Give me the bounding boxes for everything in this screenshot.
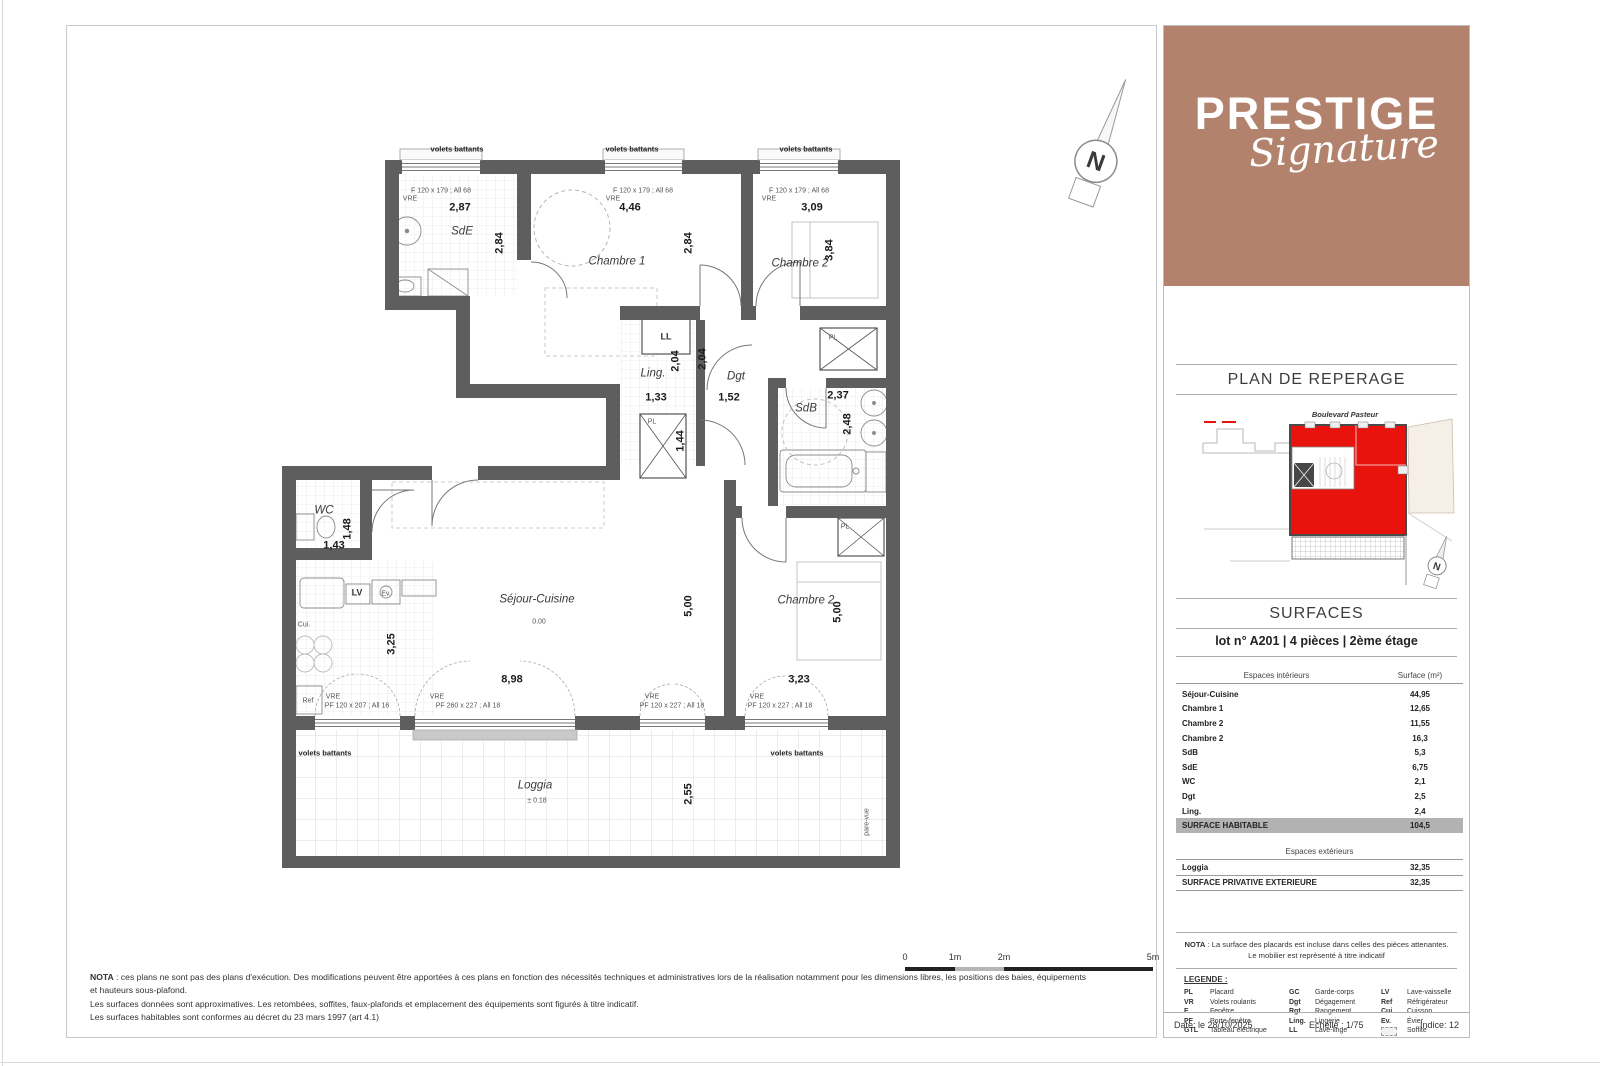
location-map: Boulevard Pasteur xyxy=(1175,399,1458,594)
exterior-total-label: SURFACE PRIVATIVE EXTERIEURE xyxy=(1176,878,1377,887)
neighbor-lines xyxy=(1204,529,1290,561)
table-row: Chambre 216,3 xyxy=(1176,731,1463,746)
ll-box xyxy=(642,318,690,354)
bed-chambre2-top xyxy=(792,222,878,298)
footer-index: Indice: 12 xyxy=(1420,1020,1459,1030)
turning-circle xyxy=(534,190,610,266)
legend-label: Lave-vaisselle xyxy=(1407,989,1459,996)
row-value: 44,95 xyxy=(1377,690,1463,699)
nota-bold: NOTA xyxy=(90,972,114,982)
legend-label: Dégagement xyxy=(1315,999,1381,1006)
room-sdb-floor xyxy=(778,388,886,506)
legend-entry: GCGarde-corps xyxy=(1289,989,1381,996)
legend-abbr: PL xyxy=(1184,989,1210,996)
sliding-door-sill xyxy=(413,730,577,740)
row-label: WC xyxy=(1176,777,1377,786)
legend-abbr: Ref xyxy=(1381,999,1407,1006)
exterior-rows: Loggia32,35 xyxy=(1176,859,1463,875)
adjacent-parcel xyxy=(1408,419,1454,513)
row-value: 2,1 xyxy=(1377,777,1463,786)
row-value: 5,3 xyxy=(1377,748,1463,757)
page: volets battantsvolets battantsvolets bat… xyxy=(0,0,1600,1066)
street-label: Boulevard Pasteur xyxy=(1312,410,1379,419)
page-edge-line-bottom xyxy=(0,1062,1600,1063)
soffite-outline xyxy=(392,482,604,528)
right-panel: PRESTIGE Signature PLAN DE REPERAGE Boul… xyxy=(1163,25,1470,1038)
legend-label: Volets roulants xyxy=(1210,999,1289,1006)
row-label: Chambre 2 xyxy=(1176,719,1377,728)
loggia-floor xyxy=(296,730,886,856)
row-label: Chambre 1 xyxy=(1176,704,1377,713)
habitable-row: SURFACE HABITABLE 104,5 xyxy=(1176,818,1463,833)
footer-scale: Echelle : 1/75 xyxy=(1309,1020,1364,1030)
col-header-surface: Surface (m²) xyxy=(1377,671,1463,680)
main-nota: NOTA : ces plans ne sont pas des plans d… xyxy=(90,971,1150,1024)
table-row: Séjour-Cuisine44,95 xyxy=(1176,687,1463,702)
surfaces-table: Espaces intérieurs Surface (m²) Séjour-C… xyxy=(1176,671,1463,891)
habitable-label: SURFACE HABITABLE xyxy=(1176,821,1377,830)
nota-line: NOTA : ces plans ne sont pas des plans d… xyxy=(90,971,1150,984)
footer-date: Date: le 28/10/2025 xyxy=(1174,1020,1253,1030)
room-sde-floor xyxy=(399,174,517,296)
legend-abbr: Dgt xyxy=(1289,999,1315,1006)
col-header-spaces: Espaces intérieurs xyxy=(1176,671,1377,680)
scale-label-5m: 5m xyxy=(1147,952,1160,962)
row-label: Chambre 2 xyxy=(1176,734,1377,743)
lot-line: lot n° A201 | 4 pièces | 2ème étage xyxy=(1176,634,1457,657)
table-row: Chambre 211,55 xyxy=(1176,716,1463,731)
table-row: WC2,1 xyxy=(1176,775,1463,790)
reperage-title: PLAN DE REPERAGE xyxy=(1176,364,1457,395)
nota-line: Les surfaces habitables sont conformes a… xyxy=(90,1011,1150,1024)
surfaces-table-header: Espaces intérieurs Surface (m²) xyxy=(1176,671,1463,684)
row-label: Ling. xyxy=(1176,807,1377,816)
row-value: 12,65 xyxy=(1377,704,1463,713)
map-loggia xyxy=(1292,537,1404,559)
footer-row: Date: le 28/10/2025 Echelle : 1/75 Indic… xyxy=(1164,1012,1469,1036)
page-edge-line xyxy=(2,0,3,1066)
row-value: 2,4 xyxy=(1377,807,1463,816)
scale-label-0: 0 xyxy=(902,952,907,962)
exterior-total-row: SURFACE PRIVATIVE EXTERIEURE 32,35 xyxy=(1176,875,1463,892)
legend-abbr: LV xyxy=(1381,989,1407,996)
table-row: SdE6,75 xyxy=(1176,760,1463,775)
legend-entry: DgtDégagement xyxy=(1289,999,1381,1006)
row-value: 32,35 xyxy=(1377,863,1463,872)
row-value: 2,5 xyxy=(1377,792,1463,801)
row-label: SdB xyxy=(1176,748,1377,757)
surfaces-title: SURFACES xyxy=(1176,598,1457,629)
table-row: Chambre 112,65 xyxy=(1176,702,1463,717)
row-label: Loggia xyxy=(1176,863,1377,872)
map-compass: N xyxy=(1422,534,1455,590)
row-label: Séjour-Cuisine xyxy=(1176,690,1377,699)
legend-label: Placard xyxy=(1210,989,1289,996)
legend-entry: LVLave-vaisselle xyxy=(1381,989,1459,996)
row-value: 16,3 xyxy=(1377,734,1463,743)
panel-nota-text: : La surface des placards est incluse da… xyxy=(1205,940,1448,960)
legend-abbr: GC xyxy=(1289,989,1315,996)
row-value: 11,55 xyxy=(1377,719,1463,728)
row-label: Dgt xyxy=(1176,792,1377,801)
nota-line: et hauteurs sous-plafond. xyxy=(90,984,1150,997)
north-compass: N xyxy=(1050,62,1170,212)
table-row: Ling.2,4 xyxy=(1176,804,1463,819)
habitable-value: 104,5 xyxy=(1377,821,1463,830)
legend-entry: VRVolets roulants xyxy=(1184,999,1289,1006)
legend-title: LEGENDE : xyxy=(1184,975,1459,984)
nota-line: Les surfaces données sont approximatives… xyxy=(90,998,1150,1011)
row-value: 6,75 xyxy=(1377,763,1463,772)
neighbor-outline xyxy=(1203,429,1289,453)
legend-label: Garde-corps xyxy=(1315,989,1381,996)
scale-label-2m: 2m xyxy=(998,952,1011,962)
table-row: Dgt2,5 xyxy=(1176,789,1463,804)
brand-block: PRESTIGE Signature xyxy=(1164,26,1469,286)
windows-top xyxy=(400,149,840,174)
interior-rows: Séjour-Cuisine44,95Chambre 112,65Chambre… xyxy=(1176,687,1463,818)
legend-entry: PLPlacard xyxy=(1184,989,1289,996)
legend-entry: RefRéfrigérateur xyxy=(1381,999,1459,1006)
legend-abbr: VR xyxy=(1184,999,1210,1006)
bed-chambre2-bottom xyxy=(797,562,881,660)
panel-nota-bold: NOTA xyxy=(1184,940,1205,949)
scale-label-1m: 1m xyxy=(949,952,962,962)
exterior-total-value: 32,35 xyxy=(1377,878,1463,887)
exterior-header: Espaces extérieurs xyxy=(1176,847,1463,856)
table-row: SdB5,3 xyxy=(1176,745,1463,760)
floor-plan xyxy=(270,140,910,880)
row-label: SdE xyxy=(1176,763,1377,772)
legend-label: Réfrigérateur xyxy=(1407,999,1459,1006)
nota-text: : ces plans ne sont pas des plans d'exéc… xyxy=(114,972,1086,982)
panel-nota: NOTA : La surface des placards est inclu… xyxy=(1176,932,1457,969)
table-row: Loggia32,35 xyxy=(1176,859,1463,875)
